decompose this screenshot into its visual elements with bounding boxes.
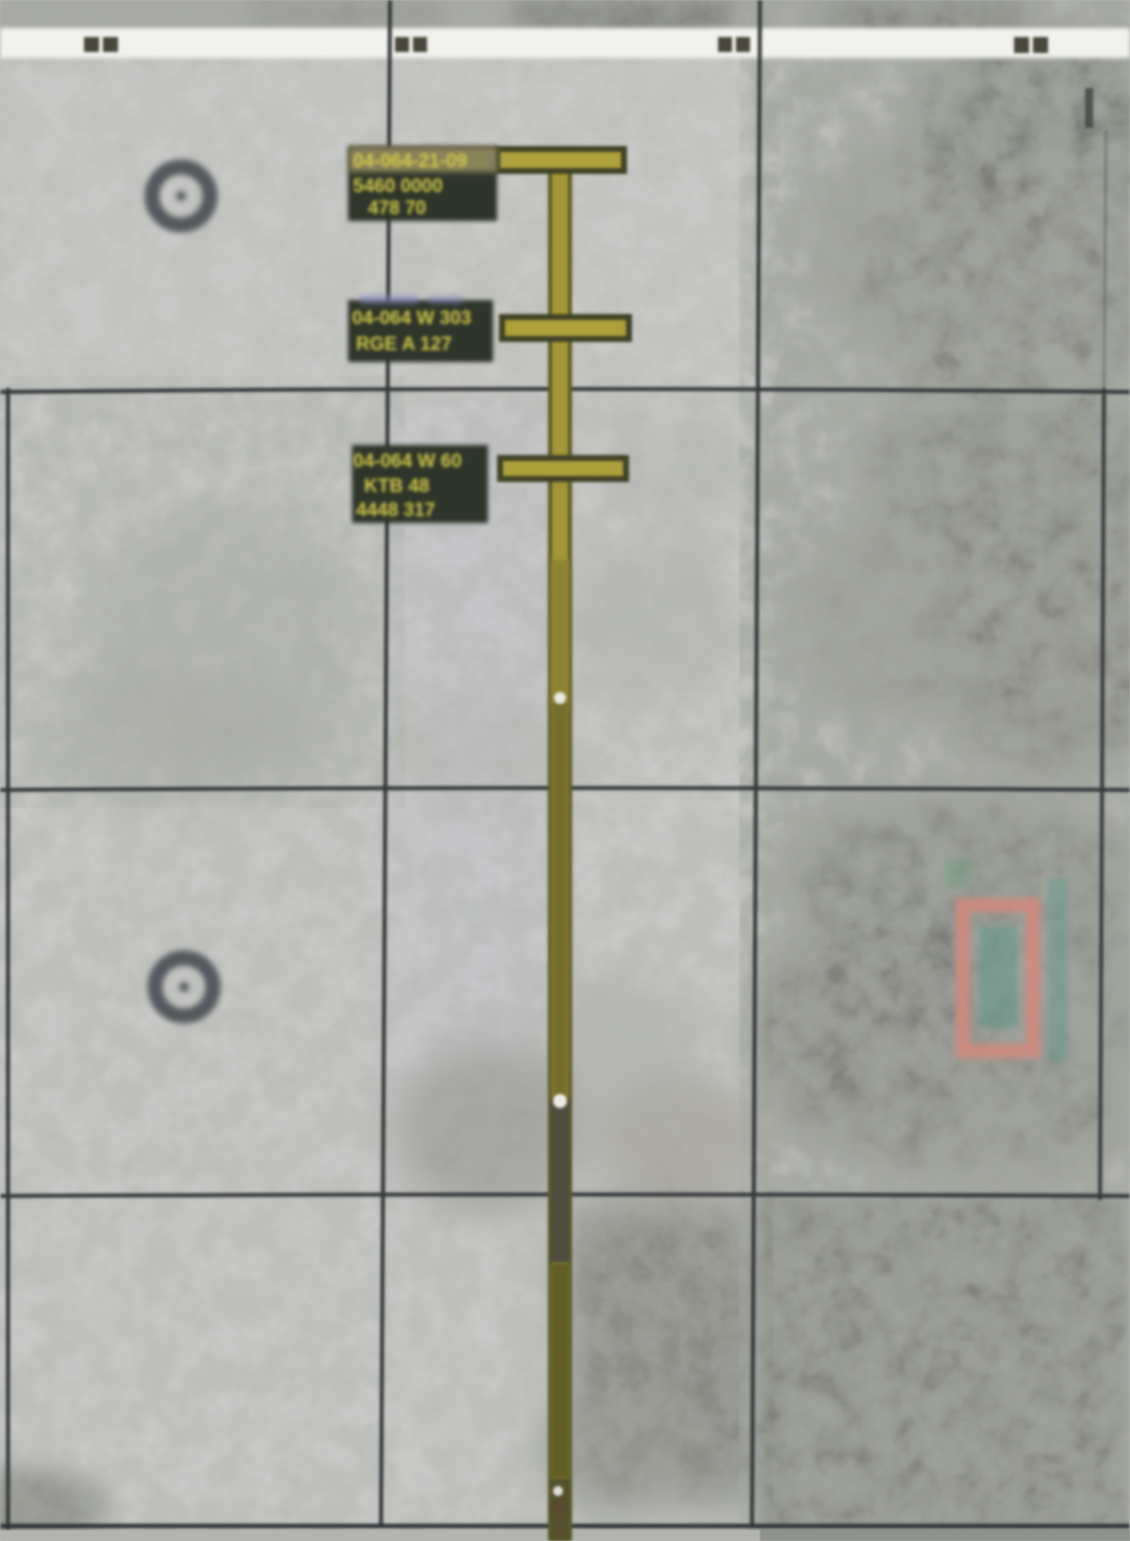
svg-text:04-064 W 60: 04-064 W 60: [353, 451, 462, 472]
svg-text:478 70: 478 70: [368, 198, 426, 219]
svg-text:04-064 W 303: 04-064 W 303: [352, 308, 471, 329]
svg-text:KTB 48: KTB 48: [364, 476, 429, 497]
svg-text:RGE A 127: RGE A 127: [356, 334, 452, 355]
svg-text:5460 0000: 5460 0000: [353, 176, 443, 197]
svg-text:04-064-21-09: 04-064-21-09: [353, 151, 467, 172]
svg-text:4448 317: 4448 317: [356, 500, 435, 521]
